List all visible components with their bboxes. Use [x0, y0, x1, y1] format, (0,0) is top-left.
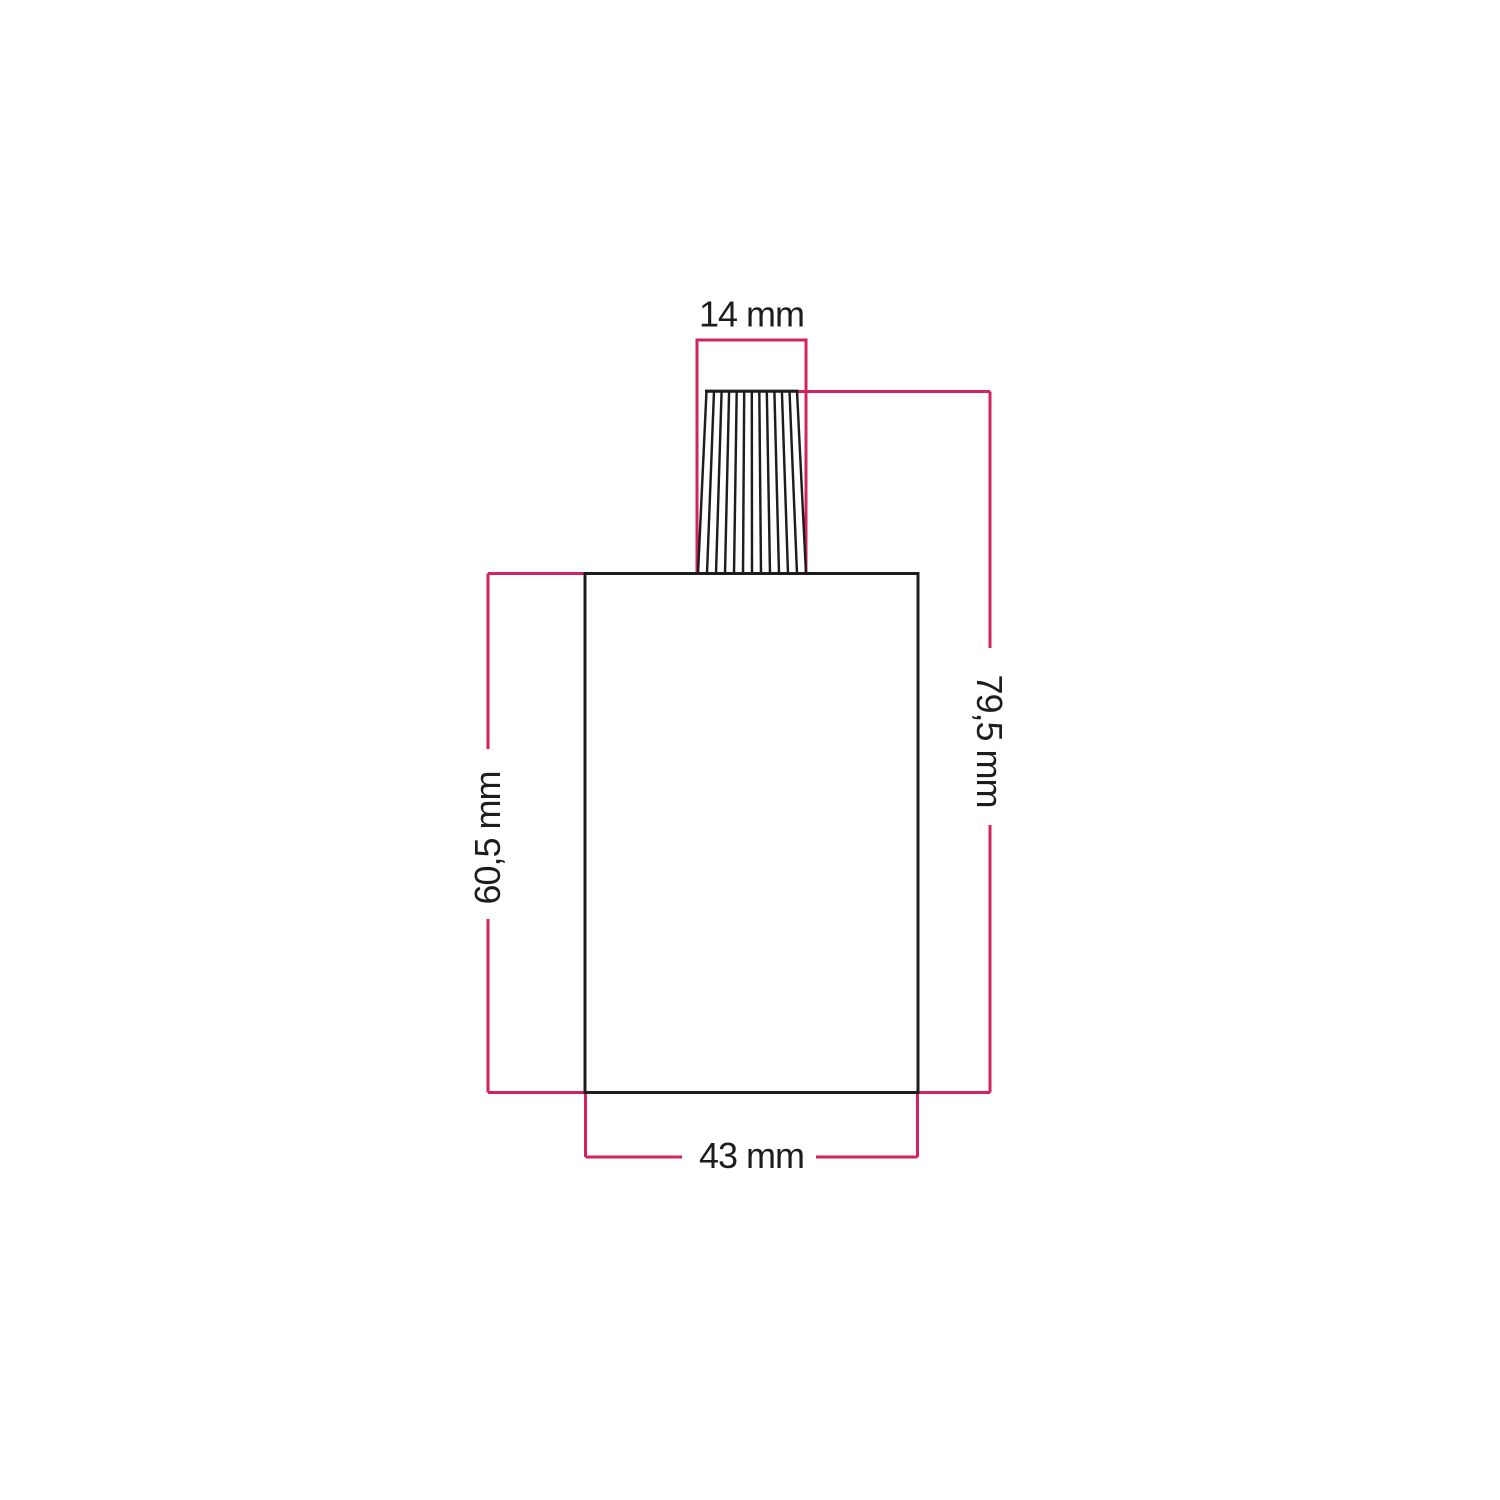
svg-text:60,5 mm: 60,5 mm	[467, 771, 508, 904]
svg-text:79,5 mm: 79,5 mm	[969, 674, 1010, 807]
svg-text:14 mm: 14 mm	[699, 294, 804, 335]
svg-text:43 mm: 43 mm	[699, 1135, 804, 1176]
